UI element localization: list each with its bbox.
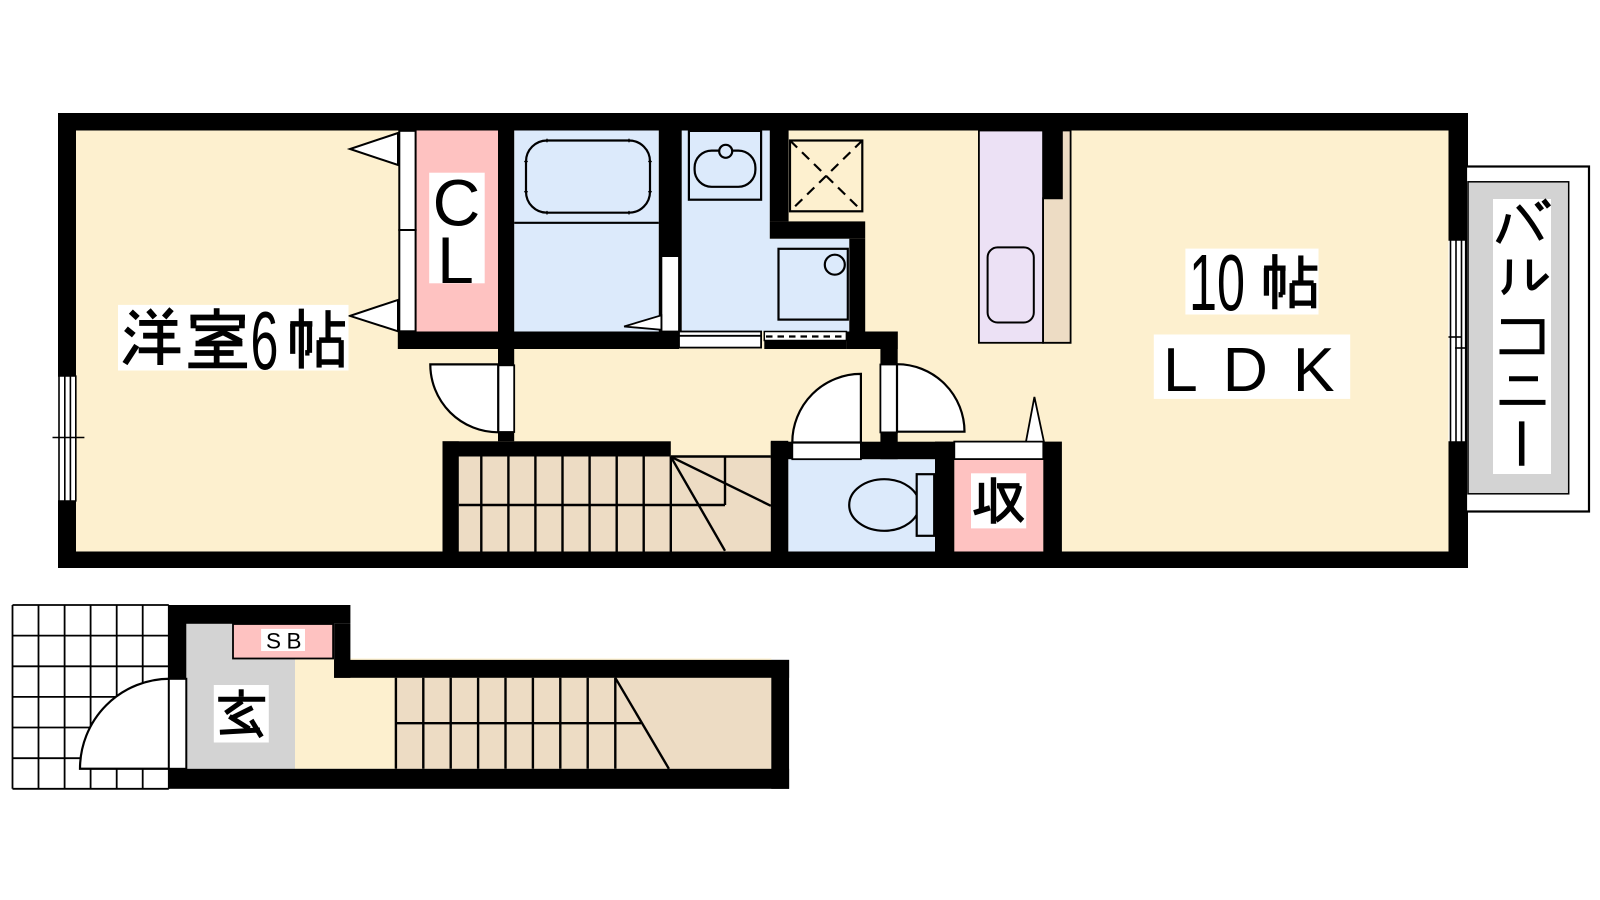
svg-text:LDK: LDK	[1163, 335, 1360, 405]
svg-text:L: L	[437, 223, 474, 297]
svg-text:10: 10	[1189, 240, 1245, 328]
svg-text:6: 6	[251, 295, 279, 387]
svg-text:SB: SB	[266, 629, 307, 654]
